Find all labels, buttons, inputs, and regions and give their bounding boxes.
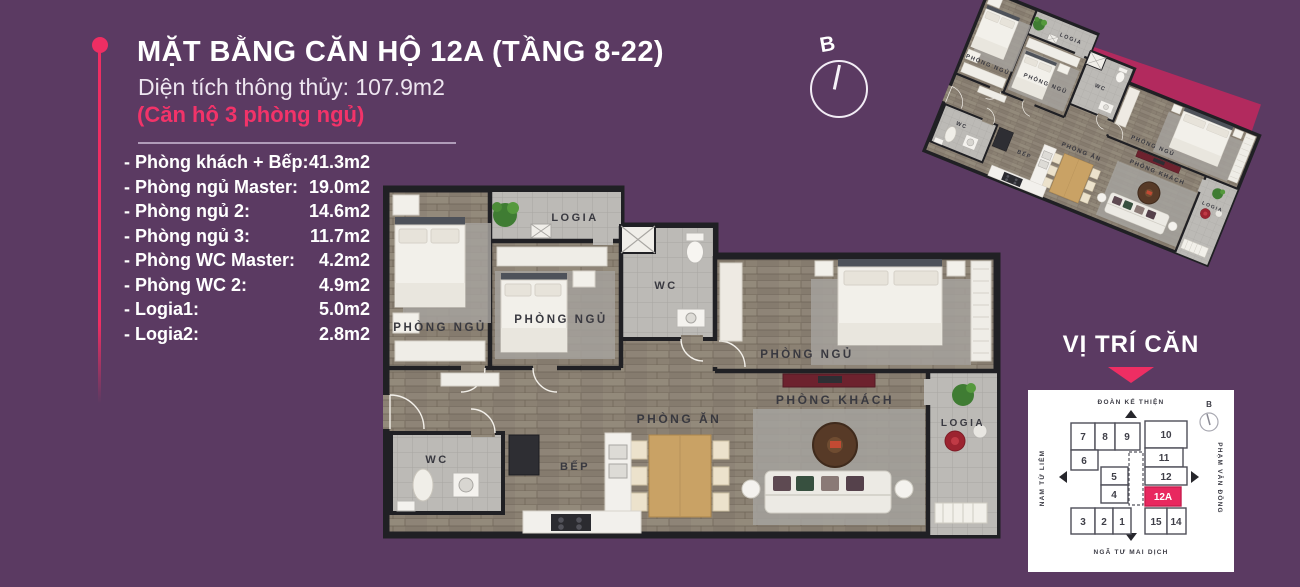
location-arrow-icon: [1108, 367, 1154, 383]
elevator-core: [1129, 452, 1143, 505]
area-value: 19.0m2: [309, 175, 370, 200]
room-area-list: - Phòng khách + Bếp:41.3m2 - Phòng ngủ M…: [124, 150, 370, 346]
area-value: 5.0m2: [319, 297, 370, 322]
cabinet: [720, 263, 742, 341]
unit-number: 3: [1080, 517, 1086, 528]
unit-number: 1: [1119, 517, 1125, 528]
separator-line: [138, 142, 456, 144]
unit-number-highlight: 12A: [1154, 492, 1172, 503]
area-row: - Phòng WC Master:4.2m2: [124, 248, 370, 273]
room-label: PHÒNG KHÁCH: [776, 392, 894, 407]
nightstand: [947, 261, 965, 276]
road-label-left: NAM TỪ LIÊM: [1037, 450, 1046, 507]
kitchen-island: [605, 433, 631, 515]
unit-number: 15: [1150, 517, 1162, 528]
room-label: PHÒNG NGỦ: [514, 313, 607, 326]
accent-line: [98, 45, 101, 403]
tv: [818, 376, 842, 383]
area-value: 41.3m2: [309, 150, 370, 175]
bed: [838, 259, 942, 345]
area-label: - Phòng WC 2:: [124, 273, 247, 298]
kitchen-counter: [523, 511, 641, 533]
area-value: 11.7m2: [310, 224, 370, 249]
area-row: - Phòng ngủ 3:11.7m2: [124, 224, 370, 249]
compass-icon: [810, 60, 868, 118]
unit-number: 4: [1111, 490, 1117, 501]
area-row: - Phòng ngủ 2:14.6m2: [124, 199, 370, 224]
area-row: - Phòng khách + Bếp:41.3m2: [124, 150, 370, 175]
area-row: - Logia1:5.0m2: [124, 297, 370, 322]
unit-number: 2: [1101, 517, 1107, 528]
room-label: PHÒNG NGỦ: [760, 348, 853, 361]
area-label: - Phòng ngủ 2:: [124, 199, 250, 224]
red-chair: [945, 431, 965, 451]
floor-key-plan: ĐOÀN KẾ THIỆN NGÃ TƯ MAI DỊCH NAM TỪ LIÊ…: [1028, 390, 1234, 572]
direction-triangle-right-icon: [1191, 471, 1199, 483]
area-row: - Phòng ngủ Master:19.0m2: [124, 175, 370, 200]
mini-compass-north-label: B: [1206, 400, 1212, 409]
stove: [551, 514, 591, 531]
area-label: - Logia1:: [124, 297, 199, 322]
room-bedroom-2: PHÒNG NGỦ: [495, 247, 615, 359]
unit-number: 9: [1124, 432, 1130, 443]
side-table: [742, 480, 760, 498]
coffee-table: [813, 423, 857, 467]
hall-shelf: [441, 373, 499, 386]
room-label: WC: [654, 280, 677, 292]
closet: [971, 261, 991, 361]
unit-number: 10: [1160, 430, 1172, 441]
nightstand: [393, 195, 419, 215]
unit-number: 5: [1111, 472, 1117, 483]
unit-number: 8: [1102, 432, 1108, 443]
washing-machine: [453, 473, 479, 497]
bed: [395, 217, 465, 307]
room-label: BẾP: [560, 460, 590, 473]
room-label: WC: [425, 454, 448, 466]
bench: [935, 503, 987, 523]
compass-needle: [833, 65, 841, 90]
road-label-bottom: NGÃ TƯ MAI DỊCH: [1093, 547, 1168, 556]
unit-boxes: 7 8 9 10 6 11 5 12 4 12A 3 2 1 15 14: [1071, 421, 1187, 534]
area-label: - Phòng WC Master:: [124, 248, 295, 273]
unit-number: 7: [1080, 432, 1086, 443]
road-label-top: ĐOÀN KẾ THIỆN: [1098, 396, 1165, 406]
unit-number: 11: [1159, 453, 1170, 464]
unit-number: 6: [1081, 456, 1087, 467]
sink-vanity: [677, 309, 705, 327]
mini-compass-icon: B: [1200, 400, 1218, 431]
toilet: [686, 233, 704, 263]
direction-triangle-up-icon: [1125, 410, 1137, 418]
page-subtitle: Diện tích thông thủy: 107.9m2: [138, 74, 445, 101]
area-label: - Logia2:: [124, 322, 199, 347]
nightstand: [573, 271, 595, 287]
sofa: [765, 471, 891, 513]
direction-triangle-left-icon: [1059, 471, 1067, 483]
area-row: - Logia2:2.8m2: [124, 322, 370, 347]
area-row: - Phòng WC 2:4.9m2: [124, 273, 370, 298]
wardrobe: [497, 247, 607, 266]
page: MẶT BẰNG CĂN HỘ 12A (TẦNG 8-22) Diện tíc…: [0, 0, 1300, 587]
area-value: 14.6m2: [309, 199, 370, 224]
bathtub: [413, 469, 433, 501]
floorplan: PHÒNG NGỦ LOGIA: [383, 183, 1003, 548]
road-label-right: PHẠM VĂN ĐỒNG: [1216, 442, 1226, 514]
unit-location-card: ĐOÀN KẾ THIỆN NGÃ TƯ MAI DỊCH NAM TỪ LIÊ…: [1028, 390, 1234, 572]
bed: [501, 273, 567, 352]
unit-number: 14: [1170, 517, 1182, 528]
shaft: [621, 226, 655, 253]
room-label: PHÒNG NGỦ: [393, 321, 486, 334]
page-title: MẶT BẰNG CĂN HỘ 12A (TẦNG 8-22): [137, 36, 664, 69]
area-value: 2.8m2: [319, 322, 370, 347]
room-label: LOGIA: [551, 212, 598, 224]
sink: [397, 501, 415, 511]
unit-location-title: VỊ TRÍ CĂN: [1028, 331, 1234, 359]
area-label: - Phòng khách + Bếp:: [124, 150, 309, 175]
area-value: 4.2m2: [319, 248, 370, 273]
area-value: 4.9m2: [319, 273, 370, 298]
area-label: - Phòng ngủ Master:: [124, 175, 298, 200]
unit-number: 12: [1160, 472, 1172, 483]
wardrobe: [395, 341, 485, 361]
fridge: [509, 435, 539, 475]
bedroom-count-note: (Căn hộ 3 phòng ngủ): [137, 102, 364, 128]
side-table: [895, 480, 913, 498]
area-label: - Phòng ngủ 3:: [124, 224, 250, 249]
room-label: PHÒNG ĂN: [637, 411, 722, 426]
room-label: LOGIA: [941, 418, 985, 429]
compass-north-label: B: [818, 32, 837, 58]
nightstand: [815, 261, 833, 276]
